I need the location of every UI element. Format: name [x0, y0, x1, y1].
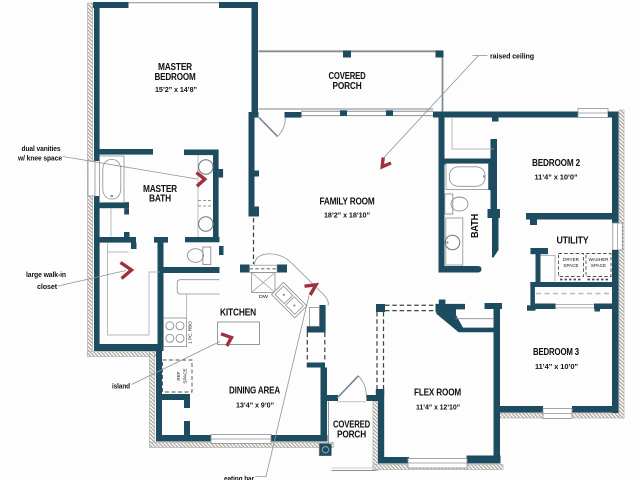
- svg-text:DRYER: DRYER: [563, 257, 580, 262]
- svg-text:FLEX ROOM: FLEX ROOM: [414, 388, 461, 399]
- svg-text:DW: DW: [259, 294, 269, 299]
- svg-text:BEDROOM 2: BEDROOM 2: [532, 158, 581, 169]
- svg-text:SPACE: SPACE: [591, 263, 606, 268]
- svg-text:11’4” x 12’10”: 11’4” x 12’10”: [416, 403, 460, 412]
- svg-text:18’2” x 18’10”: 18’2” x 18’10”: [324, 211, 370, 220]
- svg-text:15’2” x 14’8”: 15’2” x 14’8”: [155, 85, 197, 94]
- svg-text:BATH: BATH: [149, 194, 171, 205]
- svg-text:11’4” x 10’0”: 11’4” x 10’0”: [535, 362, 578, 371]
- svg-text:dual vanities: dual vanities: [22, 144, 61, 153]
- svg-text:SPACE: SPACE: [183, 368, 188, 383]
- svg-text:WASHER: WASHER: [589, 257, 610, 262]
- svg-text:PORCH: PORCH: [337, 430, 366, 441]
- svg-text:1 PC. RBO: 1 PC. RBO: [188, 321, 193, 344]
- svg-text:w/ knee space: w/ knee space: [17, 154, 62, 163]
- svg-text:raised ceiling: raised ceiling: [490, 52, 534, 61]
- svg-text:eating bar: eating bar: [224, 474, 254, 480]
- svg-text:11’4” x 10’0”: 11’4” x 10’0”: [535, 173, 578, 182]
- svg-text:large walk-in: large walk-in: [26, 270, 66, 279]
- svg-text:BATH: BATH: [470, 214, 481, 238]
- svg-text:PORCH: PORCH: [333, 81, 362, 92]
- svg-text:13’4” x 9’0”: 13’4” x 9’0”: [236, 401, 274, 410]
- svg-text:closet: closet: [37, 282, 58, 291]
- svg-text:UTILITY: UTILITY: [557, 236, 590, 247]
- svg-text:SPACE: SPACE: [563, 263, 578, 268]
- svg-text:DINING AREA: DINING AREA: [229, 386, 280, 397]
- svg-text:FAMILY ROOM: FAMILY ROOM: [320, 197, 375, 208]
- svg-text:BEDROOM 3: BEDROOM 3: [533, 347, 580, 358]
- svg-text:island: island: [112, 382, 130, 391]
- svg-text:KITCHEN: KITCHEN: [220, 308, 256, 319]
- svg-text:BEDROOM: BEDROOM: [155, 72, 196, 83]
- svg-text:REF: REF: [176, 371, 181, 380]
